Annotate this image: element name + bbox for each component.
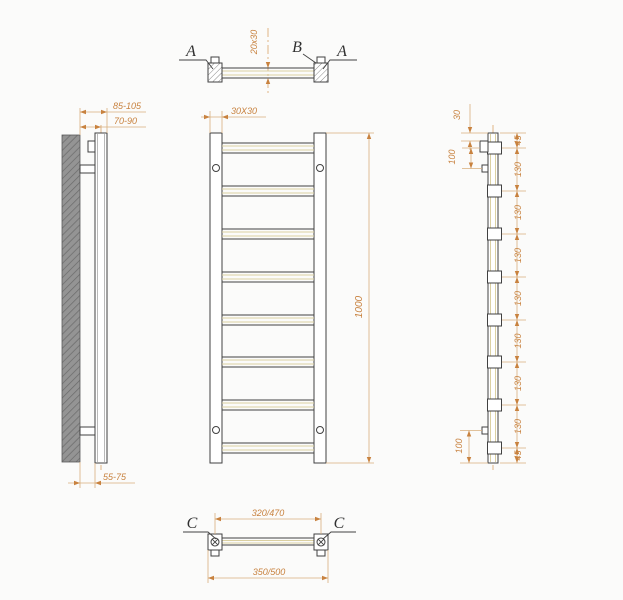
bracket-bottom — [482, 427, 488, 434]
dim-post-size: 30X30 — [231, 106, 257, 116]
rung-end — [488, 271, 502, 283]
section-b-leader — [303, 54, 316, 63]
right-connector-tab — [317, 550, 325, 556]
dim-spacing-130-4: 130 — [513, 291, 523, 306]
dim-spacing-130-2: 130 — [513, 205, 523, 220]
rung-end — [488, 442, 502, 454]
mount-hole — [317, 165, 324, 172]
mount-hole — [213, 427, 220, 434]
bracket-top — [80, 165, 95, 173]
left-side-view: 85-105 70-90 55-75 — [62, 101, 146, 488]
dim-height: 1000 — [354, 295, 365, 318]
rail-side-profile — [488, 133, 498, 463]
dim-spacing-130-5: 130 — [513, 333, 523, 348]
dim-spacing-130-6: 130 — [513, 376, 523, 391]
dim-wall-distance-mid: 70-90 — [114, 116, 137, 126]
dim-inner-width: 320/470 — [252, 508, 285, 518]
rung-end — [488, 399, 502, 411]
rung-end — [488, 142, 502, 154]
bottom-section-view: C C 320/470 350/500 — [183, 508, 356, 583]
rungs — [222, 143, 314, 453]
dim-bracket-bottom: 100 — [454, 438, 464, 453]
dim-spacing-130-7: 130 — [513, 419, 523, 434]
left-connector-tab — [211, 57, 219, 63]
wall-section — [62, 135, 80, 462]
section-label-a-left: A — [185, 43, 196, 60]
top-section-view: 20x30 A B A — [179, 28, 357, 96]
front-view: 30X30 1000 — [201, 106, 374, 463]
tube-profile — [222, 538, 314, 545]
rung — [222, 229, 314, 239]
left-post — [210, 133, 222, 463]
mount-hole — [213, 165, 220, 172]
tube-dim-arrows — [266, 62, 270, 84]
dim-outer-width: 350/500 — [253, 567, 286, 577]
rung-end — [488, 356, 502, 368]
rung-spacing-chain: 45 130 130 130 130 130 130 130 45 — [500, 133, 526, 463]
dim-spacing-45-top: 45 — [513, 135, 523, 146]
right-side-view: 30 100 100 45 130 130 — [447, 104, 526, 470]
drawing-canvas: 20x30 A B A 85-105 70-90 55-75 — [0, 0, 623, 600]
pipe-stub — [480, 141, 488, 152]
dim-spacing-130-1: 130 — [513, 162, 523, 177]
bracket-top — [482, 165, 488, 172]
post-side-profile — [95, 133, 107, 463]
section-label-c-left: C — [187, 515, 198, 532]
dim-spacing-130-3: 130 — [513, 248, 523, 263]
rung — [222, 357, 314, 367]
towel-rail-technical-drawing: 20x30 A B A 85-105 70-90 55-75 — [0, 0, 623, 600]
right-post — [314, 133, 326, 463]
mount-hole — [317, 427, 324, 434]
pipe-stub — [88, 141, 95, 152]
dim-top-offset: 30 — [452, 110, 462, 120]
dim-spacing-45-bottom: 45 — [513, 450, 523, 461]
bracket-bottom — [80, 427, 95, 435]
dim-wall-distance-max: 85-105 — [113, 101, 142, 111]
rung-end — [488, 185, 502, 197]
right-connector-tab — [317, 57, 325, 63]
section-label-c-right: C — [334, 515, 345, 532]
section-label-a-right: A — [336, 43, 347, 60]
rung — [222, 400, 314, 410]
dim-wall-distance-min: 55-75 — [103, 472, 127, 482]
dim-tube-size: 20x30 — [249, 30, 259, 56]
rung — [222, 272, 314, 282]
rung — [222, 443, 314, 453]
left-connector-tab — [211, 550, 219, 556]
rung — [222, 143, 314, 153]
section-label-b: B — [292, 39, 302, 56]
rung-end — [488, 314, 502, 326]
rung-end — [488, 228, 502, 240]
dim-bracket-top: 100 — [447, 149, 457, 164]
rung — [222, 186, 314, 196]
rung — [222, 315, 314, 325]
